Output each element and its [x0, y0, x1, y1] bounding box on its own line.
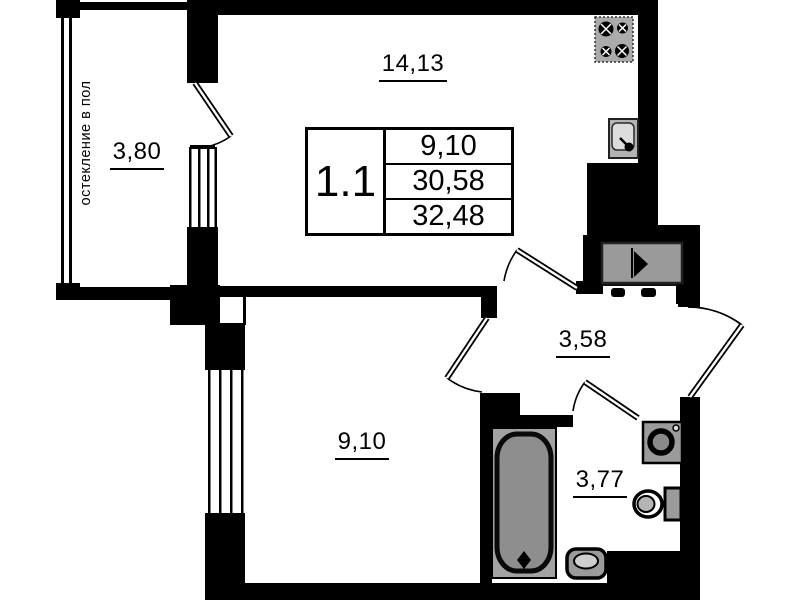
entrance-door — [688, 307, 742, 397]
balcony-window — [189, 145, 217, 227]
room-label-bathroom: 3,77 — [565, 466, 635, 498]
balcony-door — [195, 83, 231, 147]
bedroom-window — [208, 370, 244, 513]
bathtub-icon — [492, 428, 556, 578]
balcony-glazing — [61, 10, 72, 287]
kitchen-sink-icon — [609, 119, 638, 158]
floor-plan: 14,13 3,80 9,10 3,58 3,77 остекление в п… — [0, 0, 799, 600]
apartment-info-table: 1.1 9,10 30,58 32,48 — [305, 127, 514, 236]
washing-machine-icon — [643, 422, 682, 463]
bathroom-door — [573, 382, 638, 418]
washbasin-icon — [567, 549, 606, 578]
room-label-balcony: 3,80 — [102, 138, 172, 170]
apartment-area-value: 30,58 — [386, 165, 511, 200]
stove-icon — [595, 17, 633, 62]
living-area-value: 9,10 — [386, 130, 511, 165]
floor-plan-drawing — [0, 0, 799, 600]
total-area-value: 32,48 — [386, 200, 511, 233]
bedroom-door — [447, 318, 487, 392]
vent-shaft-icon — [602, 243, 682, 283]
walls — [56, 0, 700, 600]
living-room-door — [504, 250, 577, 288]
room-label-bedroom: 9,10 — [326, 428, 398, 460]
balcony-glazing-note: остекление в пол — [78, 72, 96, 214]
room-label-living: 14,13 — [373, 50, 453, 82]
unit-number: 1.1 — [308, 130, 386, 233]
room-label-hallway: 3,58 — [548, 326, 618, 358]
toilet-icon — [634, 488, 681, 520]
